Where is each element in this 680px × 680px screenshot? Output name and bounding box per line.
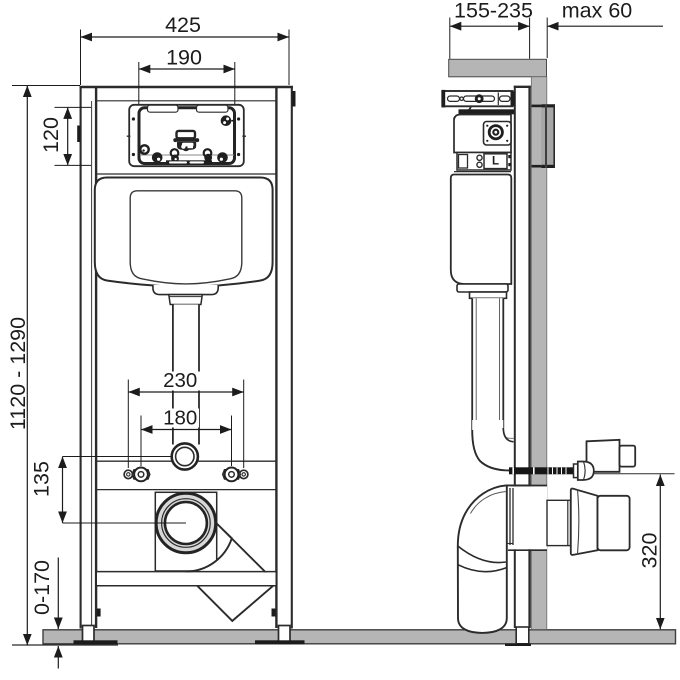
svg-text:135: 135: [30, 461, 54, 497]
svg-text:1120 - 1290: 1120 - 1290: [6, 317, 30, 430]
svg-text:L: L: [492, 156, 499, 168]
svg-text:320: 320: [638, 533, 662, 569]
svg-text:120: 120: [39, 117, 63, 153]
svg-text:0-170: 0-170: [30, 560, 54, 615]
svg-text:425: 425: [165, 13, 201, 37]
svg-text:max 60: max 60: [562, 0, 633, 23]
svg-text:180: 180: [163, 407, 197, 430]
svg-text:230: 230: [163, 369, 197, 392]
svg-text:155-235: 155-235: [454, 0, 533, 23]
svg-text:190: 190: [166, 46, 202, 70]
